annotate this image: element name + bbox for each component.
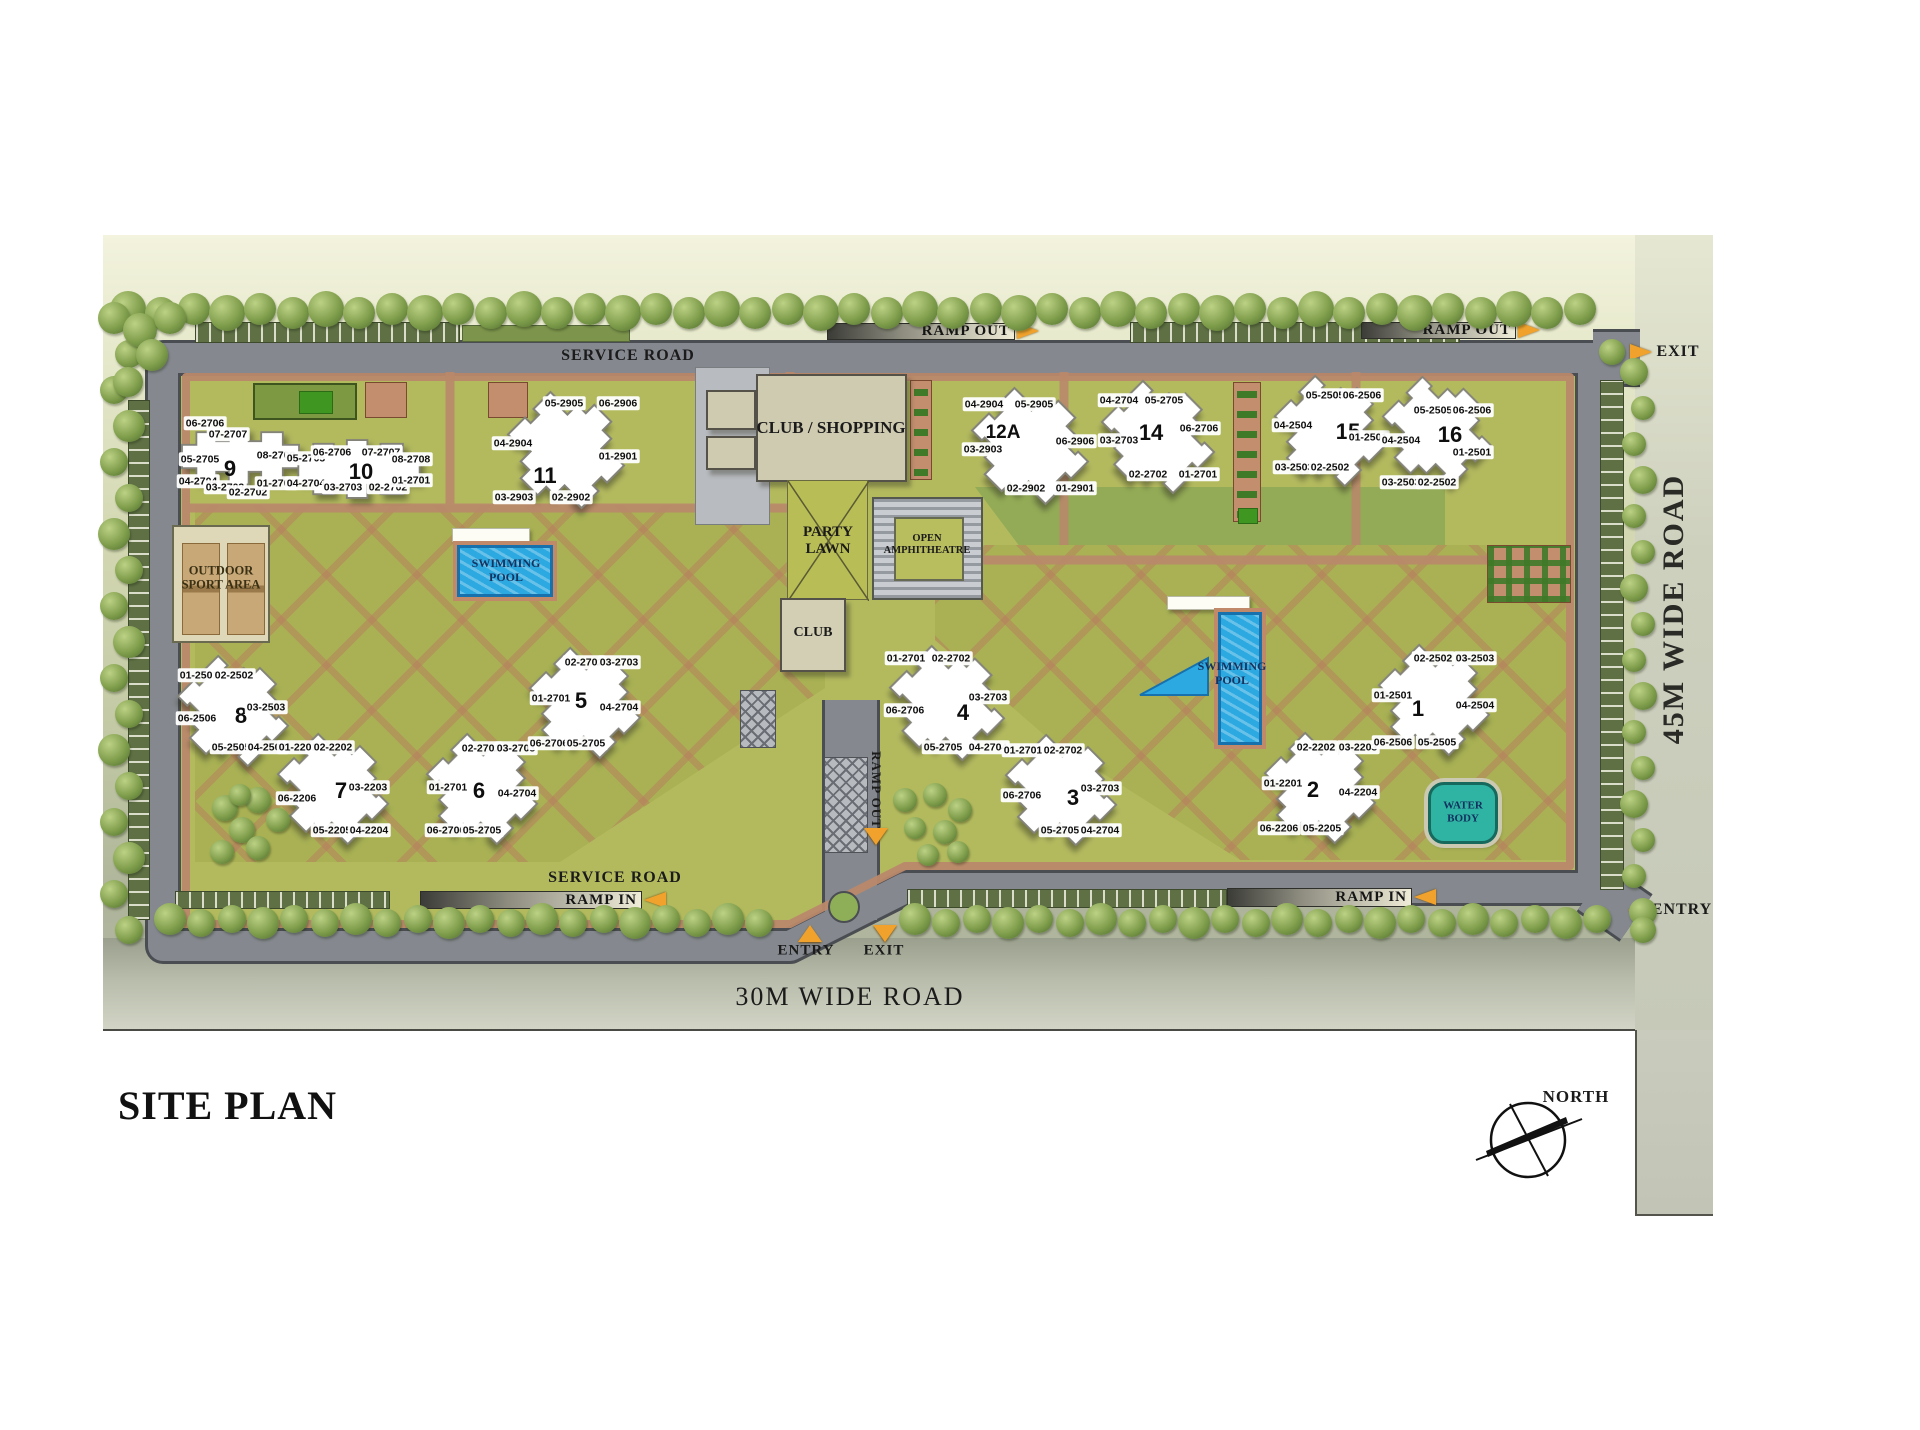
exit-bottom-label: EXIT	[864, 943, 905, 960]
club-shopping-label: CLUB / SHOPPING	[756, 418, 905, 438]
exit-top-label: EXIT	[1656, 343, 1699, 361]
road-network	[0, 0, 1920, 1430]
hedge-top	[462, 325, 630, 342]
north-compass-icon	[1468, 1086, 1598, 1206]
garden-bed-b	[488, 382, 528, 418]
service-road-top-label: SERVICE ROAD	[561, 347, 695, 365]
pool-deck-right	[1167, 596, 1250, 610]
exit-top-arrow-icon	[1630, 344, 1652, 360]
garden-bed-a	[365, 382, 407, 418]
ramp-out-top-left: RAMP OUT	[827, 323, 1015, 340]
ramp-in-bottom-left-arrow-icon	[644, 892, 666, 908]
parking-bottom-left	[175, 891, 390, 909]
right-road-label: 45M WIDE ROAD	[1657, 429, 1691, 789]
page-title: SITE PLAN	[118, 1082, 337, 1129]
entry-right-label: ENTRY	[1652, 901, 1712, 919]
ramp-out-top-right-arrow-icon	[1518, 322, 1540, 338]
bottom-road-label: 30M WIDE ROAD	[735, 982, 964, 1012]
pool-deck-left	[452, 528, 530, 542]
garden-strip-center	[910, 380, 932, 480]
club-annex-2	[706, 436, 756, 470]
ramp-out-center-arrow-icon	[864, 828, 888, 845]
club-annex-1	[706, 390, 756, 430]
parking-right-column	[1600, 380, 1624, 890]
crossing-hatch	[740, 690, 776, 748]
parking-left-column	[128, 400, 150, 920]
entry-bottom-label: ENTRY	[778, 943, 835, 960]
party-lawn-label: PARTY LAWN	[803, 524, 853, 559]
green-square	[1238, 508, 1258, 524]
courtyard-garden	[253, 383, 357, 420]
service-road-bottom-label: SERVICE ROAD	[548, 869, 682, 887]
swimming-pool-left-label: SWIMMING POOL	[472, 557, 541, 585]
garden-strip-right	[1233, 382, 1261, 522]
entry-bottom-arrow-icon	[798, 925, 822, 942]
club-label: CLUB	[794, 625, 833, 641]
entry-right-arrow-icon	[1628, 902, 1650, 918]
amphitheatre-label: OPEN AMPHITHEATRE	[884, 533, 971, 557]
courtyard-inner	[299, 391, 333, 414]
ramp-out-center-label: RAMP OUT	[868, 751, 884, 829]
center-ramp	[824, 757, 868, 853]
outdoor-sport-label: OUTDOOR SPORT AREA	[182, 564, 261, 593]
garden-grid-right	[1487, 545, 1571, 603]
water-body-label: WATER BODY	[1443, 799, 1483, 824]
swimming-pool-right-label: SWIMMING POOL	[1198, 660, 1267, 688]
parking-bottom-right	[907, 889, 1227, 908]
exit-bottom-arrow-icon	[873, 925, 897, 942]
ramp-in-bottom-right-arrow-icon	[1414, 889, 1436, 905]
roundabout	[829, 892, 859, 922]
site-plan-canvas: CLUB / SHOPPING PARTY LAWN OPEN AMPHITHE…	[0, 0, 1920, 1430]
ramp-out-top-left-arrow-icon	[1017, 323, 1039, 339]
parking-top-left	[195, 322, 460, 343]
ramp-in-bottom-left: RAMP IN	[420, 891, 642, 909]
ramp-out-top-right: RAMP OUT	[1361, 322, 1516, 339]
ramp-in-bottom-right: RAMP IN	[1227, 888, 1412, 907]
